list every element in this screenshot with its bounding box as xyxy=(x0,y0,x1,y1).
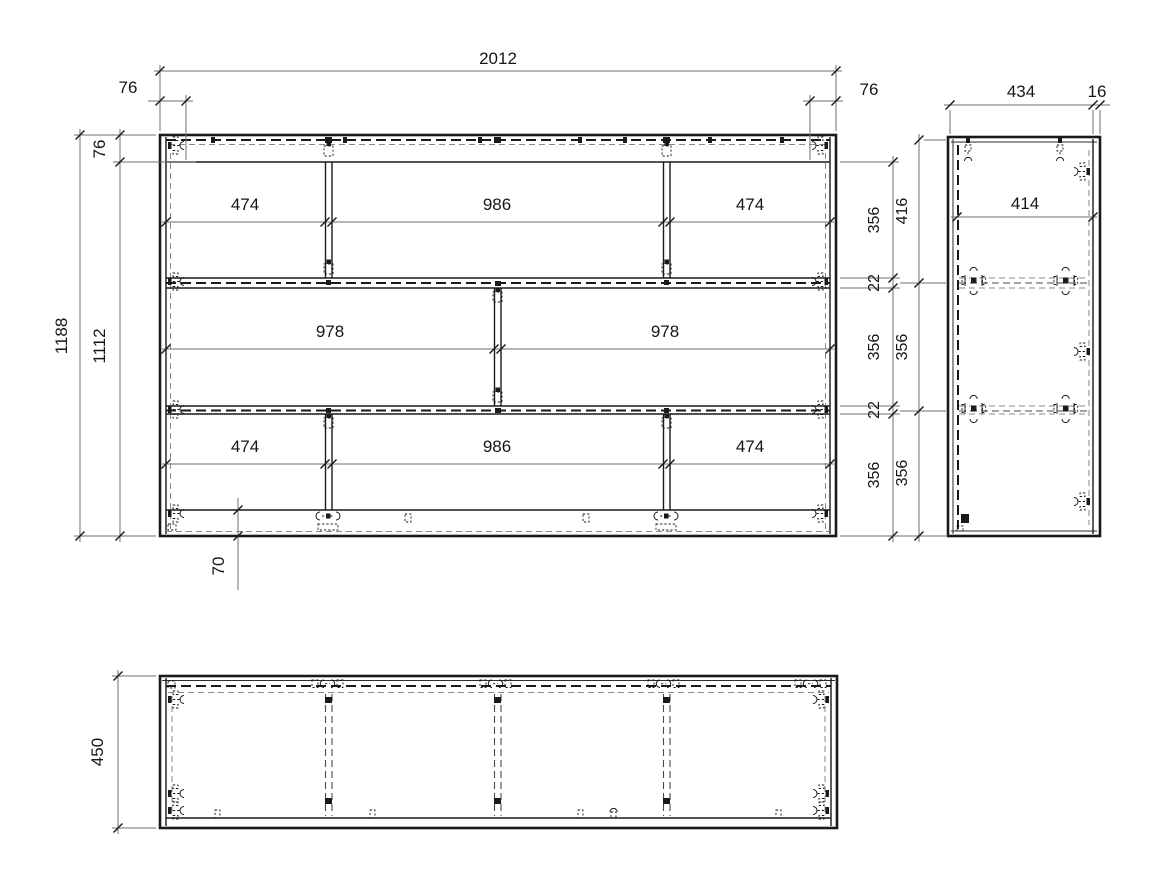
dim-side-back-panel: 16 xyxy=(1088,82,1107,101)
top-fittings xyxy=(168,680,829,819)
drawing-sheet: 2012 76 76 1188 1112 76 474 986 474 978 … xyxy=(0,0,1161,871)
fitting-icon xyxy=(662,142,671,157)
dim-front-chain-2: 22 xyxy=(866,274,883,292)
dimension-ticks xyxy=(915,101,1105,541)
fitting-icon xyxy=(168,802,184,819)
dim-front-row3-center: 986 xyxy=(483,437,511,456)
fitting-icon xyxy=(813,691,829,708)
dim-front-total-height: 1188 xyxy=(52,318,71,355)
dim-side-chain-2: 356 xyxy=(894,334,911,361)
fitting-icon xyxy=(813,802,829,819)
fitting-icon xyxy=(813,785,829,802)
dim-front-chain-5: 356 xyxy=(866,462,883,489)
fitting-icon xyxy=(965,145,972,161)
fitting-icon xyxy=(654,512,678,520)
fitting-icon xyxy=(1054,267,1078,294)
fitting-icon xyxy=(1074,343,1090,360)
dim-front-offset-left: 76 xyxy=(119,78,138,97)
dim-front-plinth: 70 xyxy=(209,557,228,576)
dim-front-total-width: 2012 xyxy=(479,49,517,68)
fitting-icon xyxy=(1074,493,1090,510)
front-dividers xyxy=(326,162,671,510)
dimension-ticks xyxy=(76,67,898,541)
top-dimensions: 450 xyxy=(88,670,156,834)
dim-front-row1-center: 986 xyxy=(483,195,511,214)
fitting-icon xyxy=(1057,145,1064,161)
dim-side-inner-depth: 414 xyxy=(1011,194,1039,213)
dim-front-inner-height: 1112 xyxy=(90,328,109,363)
dim-front-top-rail: 76 xyxy=(90,140,109,159)
dim-front-row3-left: 474 xyxy=(231,437,259,456)
fitting-icon xyxy=(316,512,340,520)
dim-front-chain-1: 356 xyxy=(866,207,883,234)
fitting-icon xyxy=(962,395,986,422)
side-shelf-hidden-1 xyxy=(959,278,1088,288)
dim-front-row1-left: 474 xyxy=(231,195,259,214)
dim-side-chain-3: 356 xyxy=(894,460,911,487)
top-hidden-dividers xyxy=(326,694,671,816)
side-shelf-hidden-2 xyxy=(959,406,1088,414)
dim-side-depth: 434 xyxy=(1007,82,1035,101)
dim-front-row2-left: 978 xyxy=(316,322,344,341)
dim-front-chain-4: 22 xyxy=(866,401,883,419)
front-dimensions: 2012 76 76 1188 1112 76 474 986 474 978 … xyxy=(52,49,946,590)
cabinet-technical-drawing: 2012 76 76 1188 1112 76 474 986 474 978 … xyxy=(0,0,1161,871)
dim-top-depth: 450 xyxy=(88,738,107,766)
dim-front-offset-right: 76 xyxy=(860,80,879,99)
top-view xyxy=(160,676,837,828)
dim-front-chain-3: 356 xyxy=(866,334,883,361)
side-dimensions: 434 16 414 416 356 356 xyxy=(894,82,1110,542)
fitting-icon xyxy=(168,785,184,802)
dim-front-row2-right: 978 xyxy=(651,322,679,341)
fitting-icon xyxy=(168,691,184,708)
fitting-icon xyxy=(1054,395,1078,422)
dim-front-row1-right: 474 xyxy=(736,195,764,214)
dim-side-chain-1: 416 xyxy=(894,198,911,225)
fitting-icon xyxy=(324,142,333,157)
dim-front-row3-right: 474 xyxy=(736,437,764,456)
fitting-icon xyxy=(1074,163,1090,180)
fitting-icon xyxy=(962,267,986,294)
